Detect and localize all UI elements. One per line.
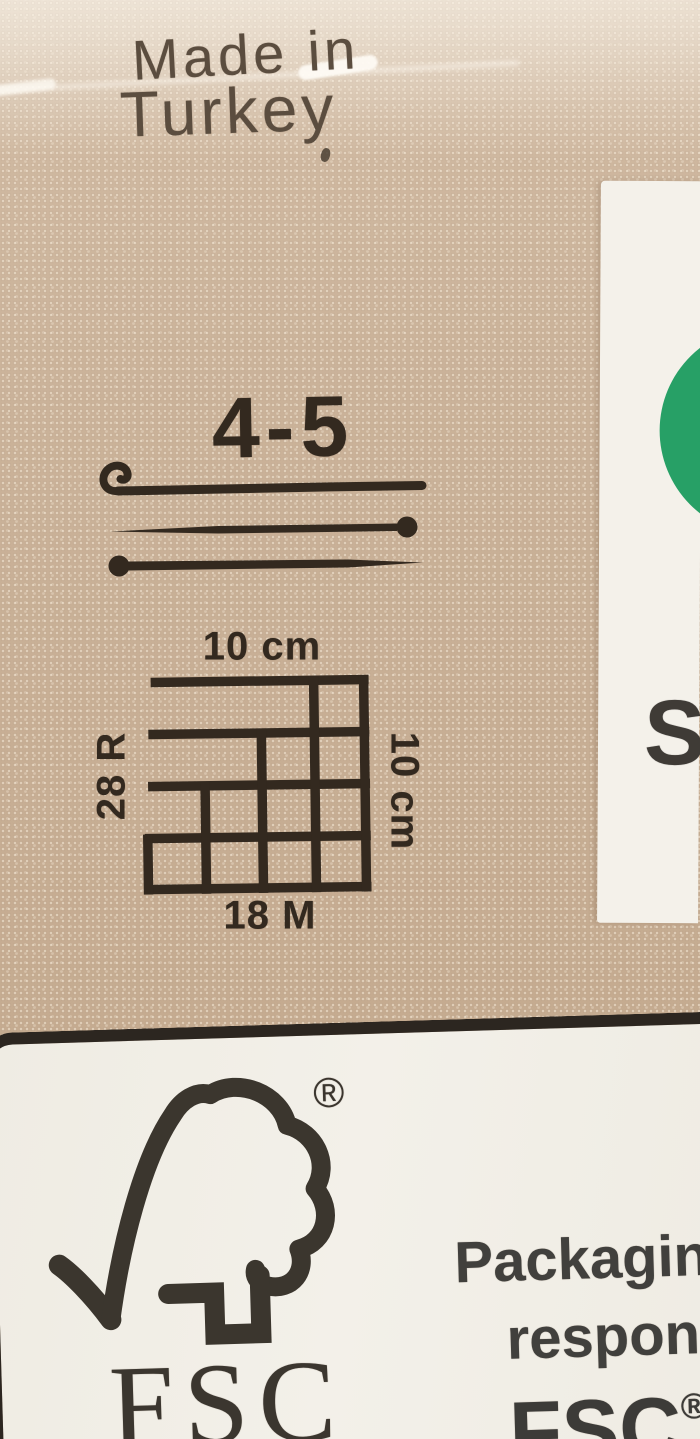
green-circle-icon [659,325,700,536]
needles-icon [98,460,432,582]
fsc-cert-text: FSC® [508,1384,700,1439]
gauge-height-label: 10 cm [382,732,427,850]
side-card: S [597,181,700,924]
registered-trademark-icon: ® [313,1069,345,1118]
packaging-text-line2: respon [506,1300,700,1373]
knitting-needle-icon [109,556,424,577]
fsc-panel: ® FSC Packagin respon FSC® [0,1010,700,1439]
gauge-stitches-label: 18 M [224,894,317,939]
country-text: Turkey [119,70,339,152]
gauge-rows-label: 28 R [90,732,135,821]
registered-trademark-icon: ® [680,1385,700,1427]
fsc-cert-acronym: FSC [508,1380,683,1439]
fsc-tree-icon [42,1067,361,1376]
packaging-text-line1: Packagin [453,1222,700,1297]
gauge-width-label: 10 cm [203,625,321,670]
fsc-logo-text: FSC [108,1343,348,1439]
knitting-needle-icon [110,517,418,538]
card-letter: S [644,681,700,786]
yarn-label-photo: Made in Turkey 4-5 10 [0,0,700,1439]
crochet-hook-icon [103,466,422,491]
